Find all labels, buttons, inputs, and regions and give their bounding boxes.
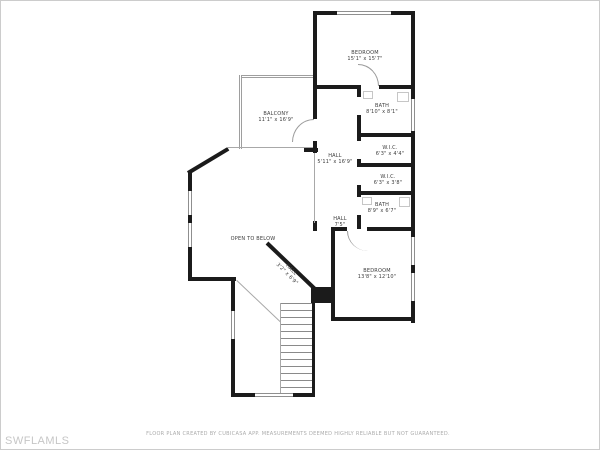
room-dims: 6'3" x 4'4" <box>376 151 404 157</box>
room-dims: 15'1" x 15'7" <box>347 56 382 62</box>
door-arc <box>347 231 368 251</box>
wall <box>313 11 317 89</box>
room-name: OPEN TO BELOW <box>231 236 276 242</box>
window <box>188 191 192 215</box>
room-label-bath-upper: BATH 8'10" x 8'1" <box>366 103 398 115</box>
wall <box>367 227 413 231</box>
wall <box>411 11 415 99</box>
wall <box>357 215 361 229</box>
room-dims: 13'8" x 12'10" <box>358 274 397 280</box>
open-area-edge <box>314 153 315 223</box>
hall-diagonal-edge <box>236 280 281 323</box>
wall <box>313 85 317 119</box>
floor-plan: BEDROOM 15'1" x 15'7" BATH 8'10" x 8'1" … <box>1 1 599 449</box>
wall <box>331 317 415 321</box>
window <box>411 99 415 131</box>
wall <box>357 163 413 167</box>
wall <box>231 393 255 397</box>
wall <box>188 215 192 223</box>
wall <box>313 85 357 89</box>
wall-diagonal <box>187 147 229 175</box>
room-dims: 11'1" x 16'9" <box>258 117 293 123</box>
room-label-bath-lower: BATH 8'9" x 6'7" <box>368 202 396 214</box>
wall <box>379 85 411 89</box>
floor-plan-image: BEDROOM 15'1" x 15'7" BATH 8'10" x 8'1" … <box>0 0 600 450</box>
window <box>231 311 235 339</box>
room-label-hall-small: HALL 7'5" <box>333 216 347 228</box>
window <box>188 223 192 247</box>
room-label-bedroom-lower: BEDROOM 13'8" x 12'10" <box>358 268 397 280</box>
wall <box>411 131 415 237</box>
wall <box>231 277 235 311</box>
bath-fixture <box>363 91 373 99</box>
window <box>411 273 415 301</box>
wall <box>357 85 361 97</box>
room-dims: 8'10" x 8'1" <box>366 109 398 115</box>
window <box>411 237 415 265</box>
window <box>255 393 293 397</box>
bath-fixture <box>399 197 410 207</box>
room-label-wic-1: W.I.C. 6'3" x 4'4" <box>376 145 404 157</box>
room-dims: 5'11" x 16'9" <box>317 159 352 165</box>
wall <box>331 227 335 321</box>
room-label-wic-2: W.I.C. 6'3" x 3'8" <box>374 174 402 186</box>
wall <box>304 148 318 152</box>
bath-fixture <box>397 92 409 102</box>
wall <box>357 133 413 137</box>
door-arc <box>358 64 379 86</box>
door-arc <box>292 119 314 142</box>
room-label-open-to-below: OPEN TO BELOW <box>231 236 276 242</box>
wall <box>231 339 235 397</box>
wall <box>411 265 415 273</box>
stairs <box>280 303 312 393</box>
room-dims: 8'9" x 6'7" <box>368 208 396 214</box>
wall <box>188 247 192 281</box>
window <box>337 11 391 15</box>
room-label-bedroom-upper: BEDROOM 15'1" x 15'7" <box>347 50 382 62</box>
wall <box>357 191 413 195</box>
mls-watermark: SWFLAMLS <box>5 435 70 448</box>
wall <box>357 115 361 141</box>
room-label-hall-main: HALL 5'11" x 16'9" <box>317 153 352 165</box>
balcony-railing <box>239 75 242 149</box>
open-area-edge <box>226 147 313 148</box>
room-dims: 7'5" <box>333 222 347 228</box>
wall <box>188 277 236 281</box>
disclaimer-text: FLOOR PLAN CREATED BY CUBICASA APP. MEAS… <box>146 431 450 437</box>
room-dims: 6'3" x 3'8" <box>374 180 402 186</box>
room-label-balcony: BALCONY 11'1" x 16'9" <box>258 111 293 123</box>
balcony-railing <box>239 75 313 78</box>
